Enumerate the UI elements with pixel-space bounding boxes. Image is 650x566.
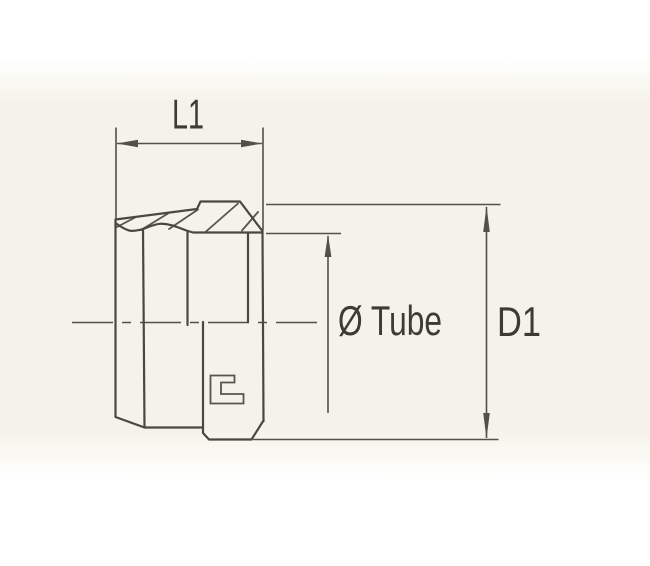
arrowhead-up-icon	[325, 235, 332, 258]
arrowhead-left-icon	[117, 140, 139, 147]
dimension-label-tube: Ø Tube	[338, 297, 442, 344]
tube-diameter-dimension: Ø Tube	[266, 234, 442, 414]
fitting-technical-drawing: L1 Ø Tube D1	[0, 0, 650, 566]
dimension-label-d1: D1	[497, 298, 541, 345]
arrowhead-down-icon	[483, 413, 490, 439]
manufacturer-mark	[211, 376, 244, 404]
scanned-page: L1 Ø Tube D1	[0, 0, 650, 566]
arrowhead-right-icon	[241, 140, 263, 147]
arrowhead-up-icon	[483, 206, 490, 232]
dimension-label-l1: L1	[172, 91, 204, 138]
